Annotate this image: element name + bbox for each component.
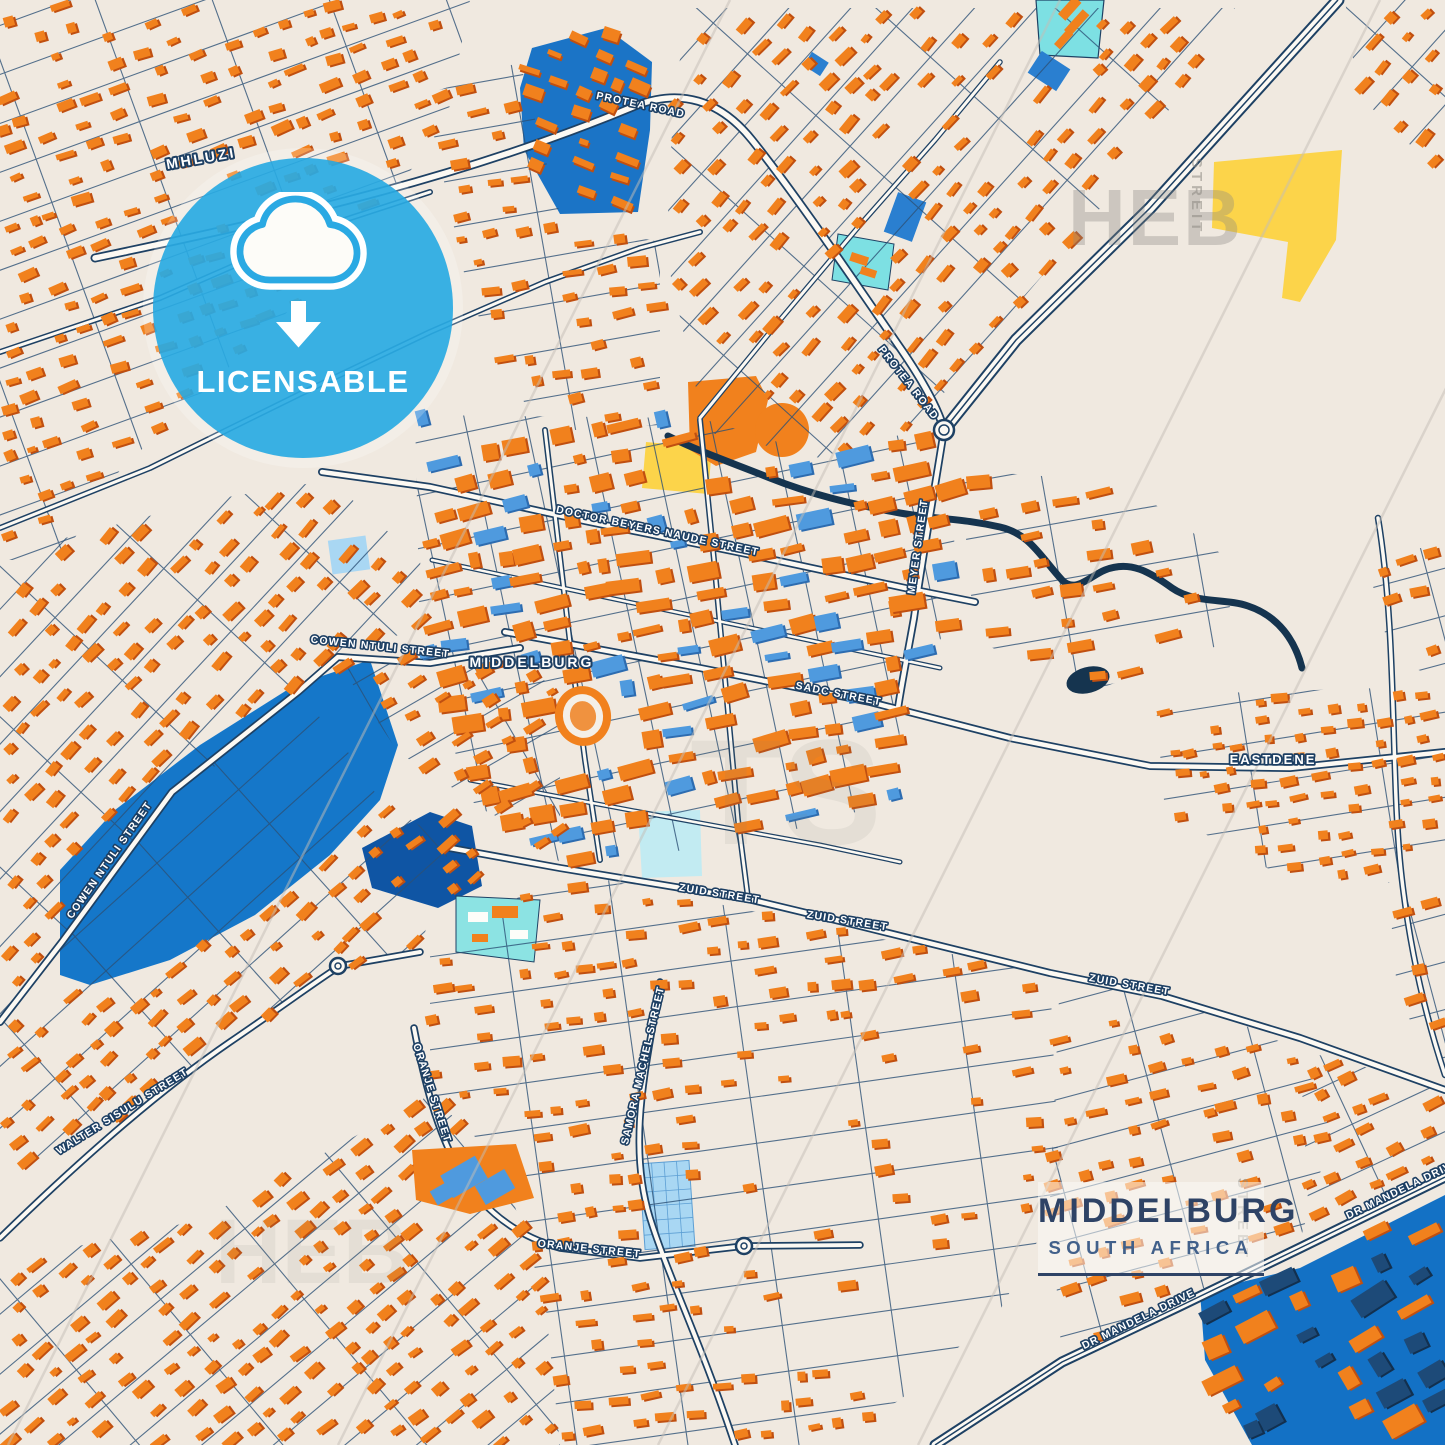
street-label: ZUID STREET	[1088, 972, 1171, 998]
cloud-download-icon	[228, 192, 378, 362]
map-poster: PROTEA ROADPROTEA ROADMEYER STREETDOCTOR…	[0, 0, 1445, 1445]
country-name: SOUTH AFRICA	[1038, 1237, 1264, 1259]
licensable-badge: LICENSABLE	[153, 158, 453, 458]
place-label: MIDDELBURG	[470, 654, 595, 670]
badge-label: LICENSABLE	[196, 364, 409, 400]
place-label: EASTDENE	[1230, 752, 1317, 767]
map-title-block: MIDDELBURG SOUTH AFRICA	[1038, 1182, 1264, 1276]
city-name: MIDDELBURG	[1038, 1192, 1264, 1231]
street-label: ORANJE STREET	[537, 1238, 641, 1261]
